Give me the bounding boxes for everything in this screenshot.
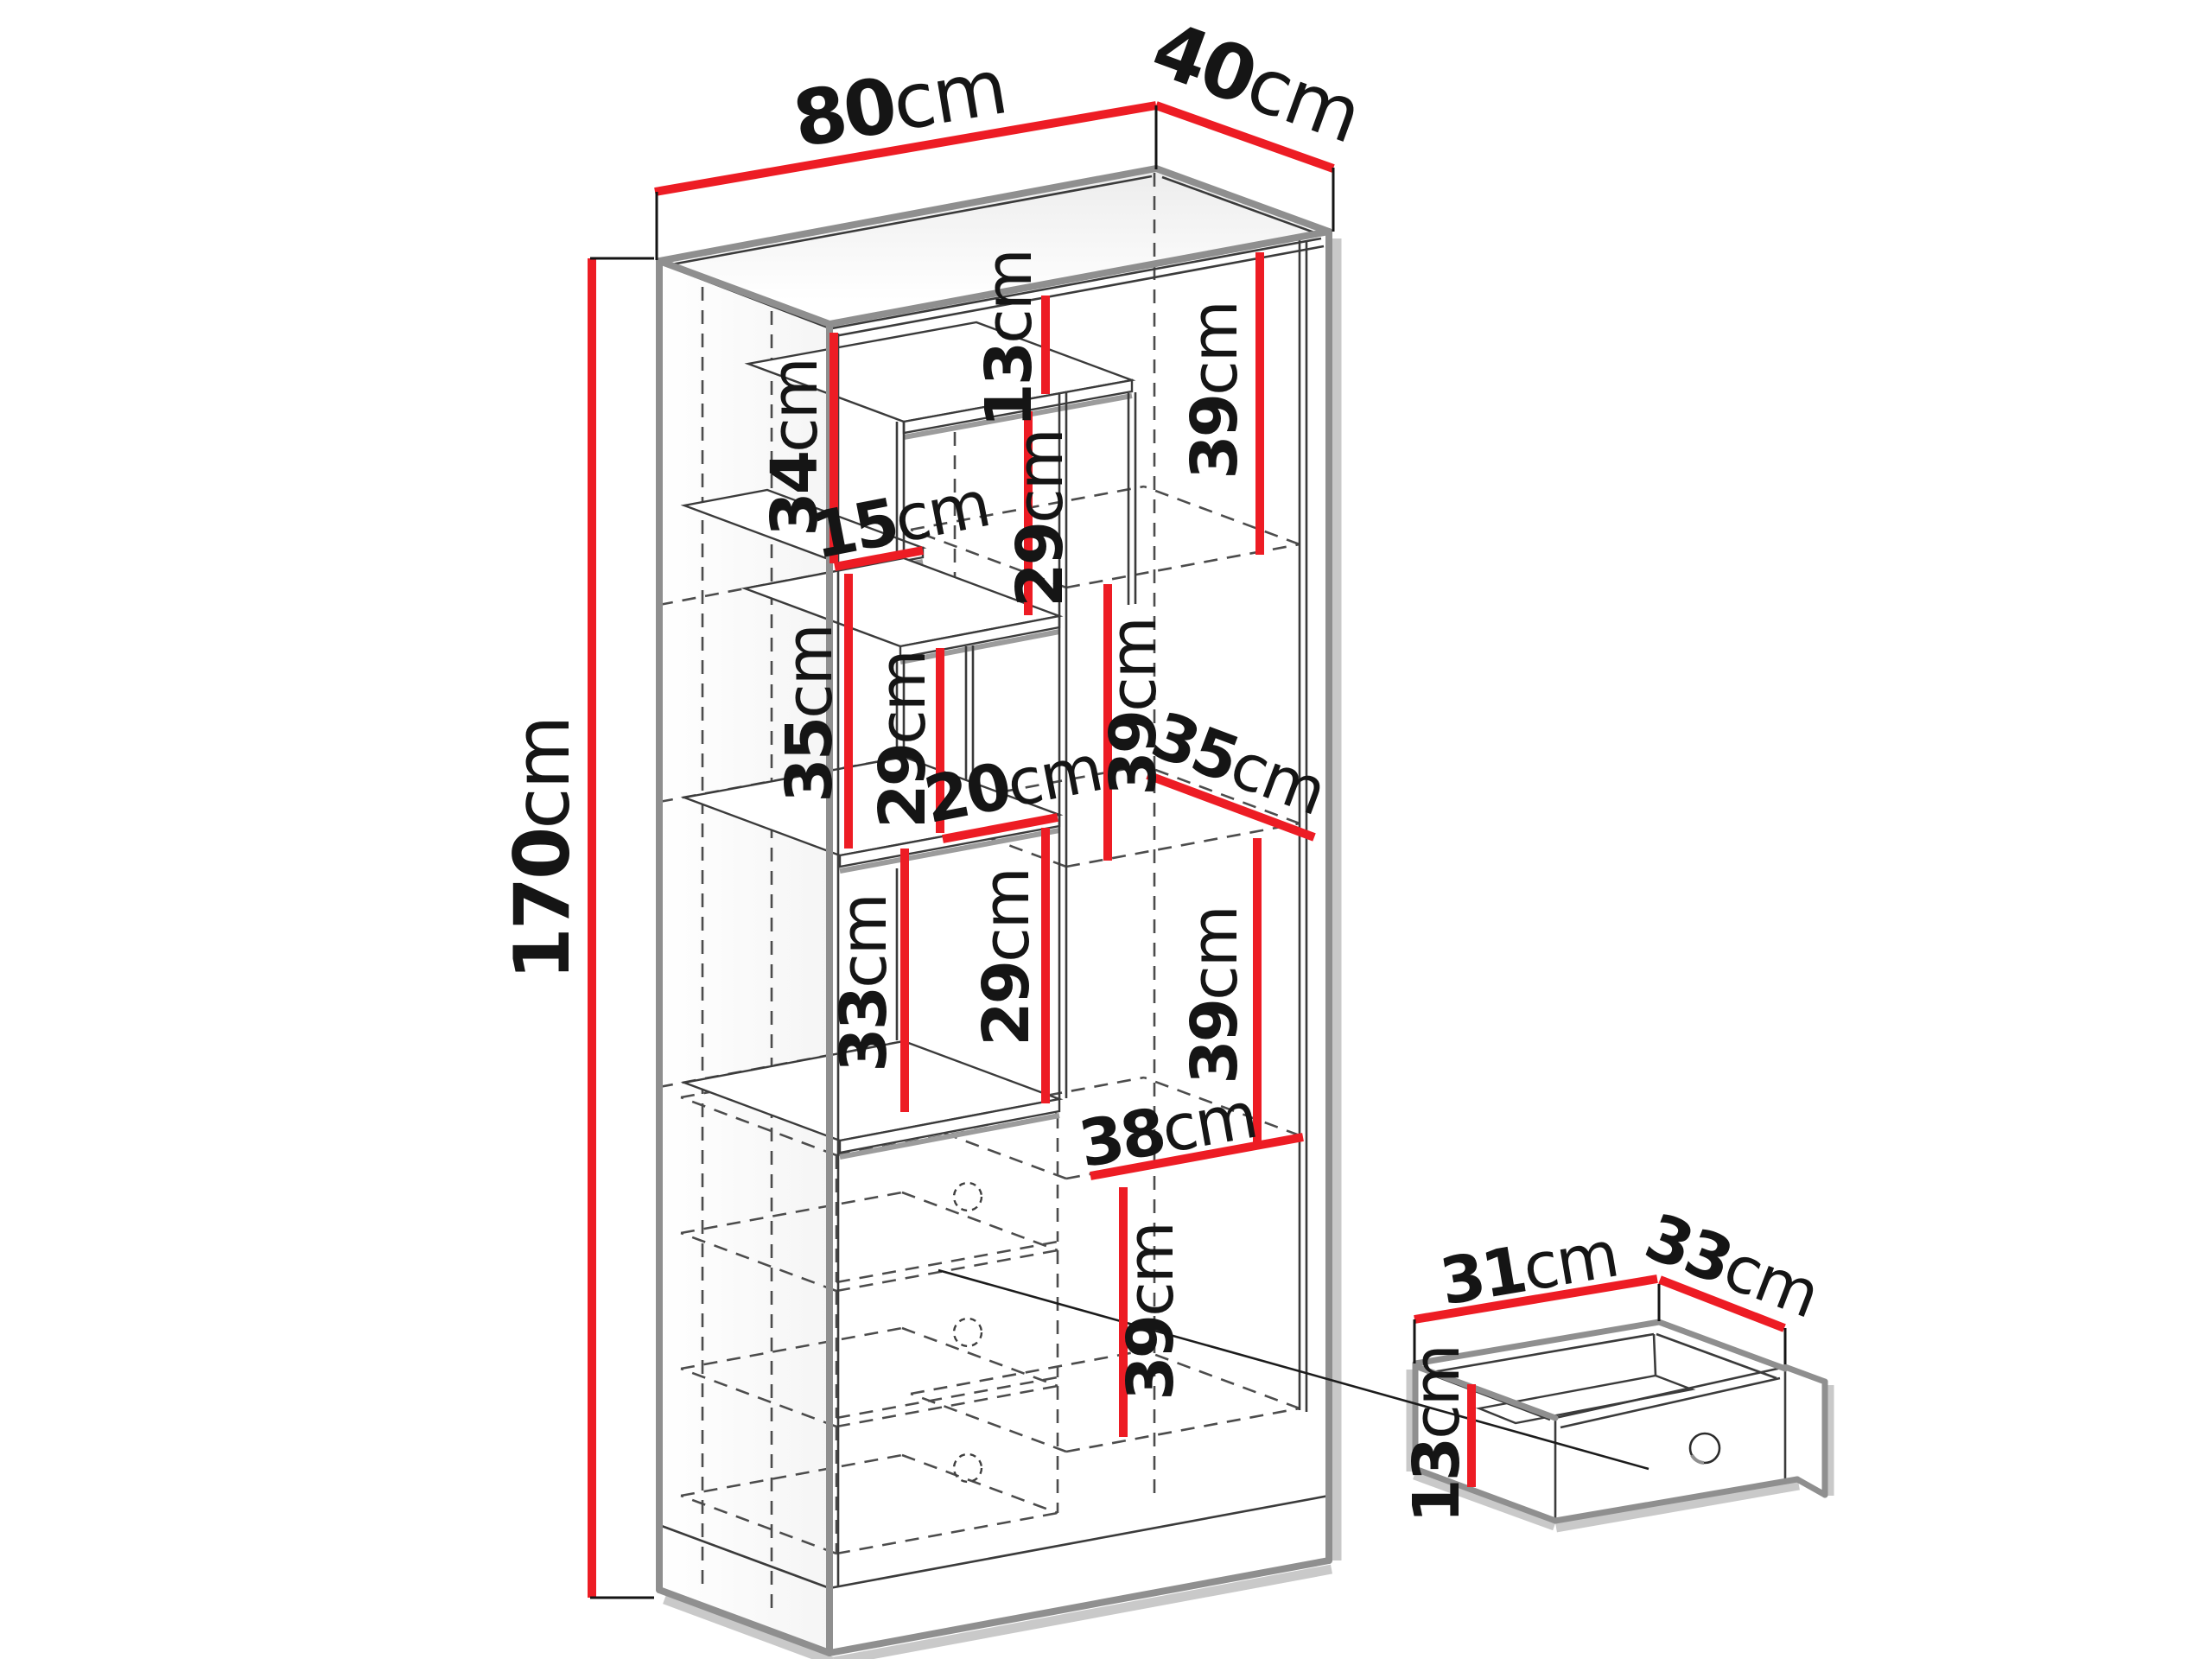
dim-label-right-39-top: 39cm [1178, 302, 1252, 480]
dim-label-drawer-height-13: 13cm [1400, 1345, 1474, 1523]
dim-label-top-width: 80cm [787, 41, 1012, 164]
dim-label-right-39-third: 39cm [1178, 906, 1252, 1084]
dim-label-lower-33: 33cm [827, 894, 901, 1072]
dim-label-cubby-13: 13cm [972, 250, 1046, 428]
dim-label-drawer-width-31: 31cm [1435, 1217, 1623, 1319]
dim-label-left-35: 35cm [772, 625, 847, 803]
furniture-dimension-diagram: 80cm40cm170cm34cm13cm29cm39cm15cm35cm29c… [0, 0, 2212, 1659]
dim-label-lower-29: 29cm [969, 868, 1044, 1046]
diagram-canvas: 80cm40cm170cm34cm13cm29cm39cm15cm35cm29c… [0, 0, 2212, 1659]
dim-label-right-39-bottom: 39cm [1114, 1223, 1188, 1401]
dim-label-cubby-29-upper: 29cm [1003, 429, 1077, 607]
dim-label-height: 170cm [498, 717, 587, 981]
